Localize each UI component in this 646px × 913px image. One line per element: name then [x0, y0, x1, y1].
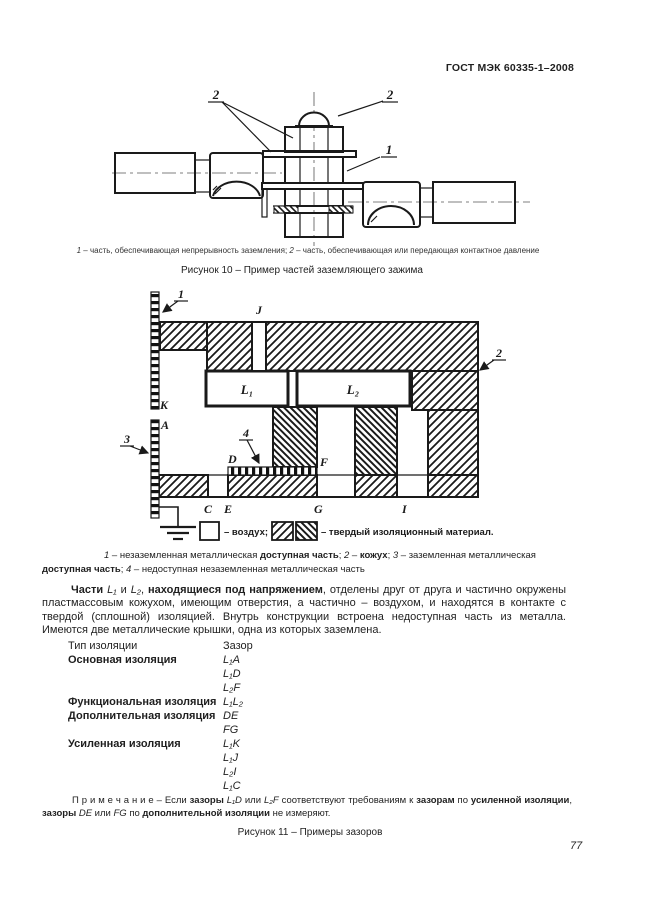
legend-solid-swatch-2	[296, 522, 317, 540]
right-clamp-strap	[363, 182, 420, 227]
table-col-gap: Зазор	[223, 639, 253, 653]
fig10-label-part2-right: 2	[386, 87, 394, 102]
insulation-gap-table: Тип изоляции Зазор Основная изоляция L₁A…	[68, 639, 253, 793]
opening-J-slot	[252, 322, 266, 371]
page-number: 77	[570, 840, 582, 852]
fig11-label-E: E	[223, 502, 232, 516]
grounded-accessible-part-strip	[151, 420, 159, 518]
body-paragraph: Части L₁ и L₂, находящиеся под напряжени…	[42, 584, 566, 638]
figure10-caption: 1 – часть, обеспечивающая непрерывность …	[30, 246, 586, 255]
figure10-leader-lines	[208, 101, 398, 171]
fig11-label-K: K	[159, 398, 169, 412]
gap-values: DE FG	[223, 709, 238, 737]
note: П р и м е ч а н и е – Если зазоры L₁D ил…	[42, 794, 572, 820]
fig11-label-4: 4	[242, 426, 249, 440]
fig11-label-F: F	[319, 455, 328, 469]
fig11-label-1: 1	[178, 287, 184, 301]
figure10-title: Рисунок 10 – Пример частей заземляющего …	[0, 265, 604, 276]
gap-values: L₁K L₁J L₂I L₁C	[223, 737, 241, 793]
fig11-label-2: 2	[495, 346, 502, 360]
insulation-type: Функциональная изоляция	[68, 695, 223, 709]
document-page: ГОСТ МЭК 60335-1–2008	[0, 0, 646, 913]
figure10-drawing: 2 2 1	[30, 85, 570, 247]
figure11-drawing: 1 2 3 4 J K A D F C E G I L₁ L₂ – воздух…	[115, 283, 517, 545]
inaccessible-metal-part-strip	[228, 467, 317, 475]
legend-air-label: – воздух;	[224, 527, 268, 538]
fig11-label-L2: L₂	[346, 382, 359, 397]
fig11-label-I: I	[401, 502, 408, 516]
insulation-type: Усиленная изоляция	[68, 737, 223, 751]
figure11-caption: 1 – незаземленная металлическая доступна…	[42, 549, 572, 576]
table-col-type: Тип изоляции	[68, 639, 223, 653]
table-row: Дополнительная изоляция DE FG	[68, 709, 253, 737]
enclosure-solid-insulation	[159, 322, 478, 497]
fig11-label-L1: L₁	[240, 382, 253, 397]
table-row: Усиленная изоляция L₁K L₁J L₂I L₁C	[68, 737, 253, 793]
gap-values: L₁L₂	[223, 695, 243, 709]
fig10-label-part2-left: 2	[212, 87, 220, 102]
left-clamp-strap	[210, 153, 263, 198]
fig11-label-J: J	[255, 303, 263, 317]
legend-solid-label: – твердый изоляционный материал.	[321, 527, 494, 538]
inner-solid-insulation-columns	[273, 407, 397, 475]
insulation-type: Дополнительная изоляция	[68, 709, 223, 723]
figure11-legend: – воздух; – твердый изоляционный материа…	[200, 522, 494, 540]
fig11-label-G: G	[314, 502, 323, 516]
gap-values: L₁A L₁D L₂F	[223, 653, 241, 695]
fig11-label-C: C	[204, 502, 213, 516]
document-number: ГОСТ МЭК 60335-1–2008	[446, 62, 574, 74]
ground-symbol	[159, 507, 196, 539]
fig11-label-3: 3	[123, 432, 130, 446]
figure11-title: Рисунок 11 – Примеры зазоров	[0, 827, 620, 838]
bolt-and-nuts	[262, 113, 363, 237]
table-row: Функциональная изоляция L₁L₂	[68, 695, 253, 709]
ungrounded-accessible-part-strip	[151, 292, 159, 409]
legend-air-swatch	[200, 522, 219, 540]
table-header-row: Тип изоляции Зазор	[68, 639, 253, 653]
fig11-label-D: D	[227, 452, 237, 466]
legend-solid-swatch-1	[272, 522, 293, 540]
insulation-type: Основная изоляция	[68, 653, 223, 667]
fig11-label-A: A	[160, 418, 169, 432]
right-cable	[420, 182, 515, 223]
fig10-label-part1: 1	[386, 142, 393, 157]
table-row: Основная изоляция L₁A L₁D L₂F	[68, 653, 253, 695]
